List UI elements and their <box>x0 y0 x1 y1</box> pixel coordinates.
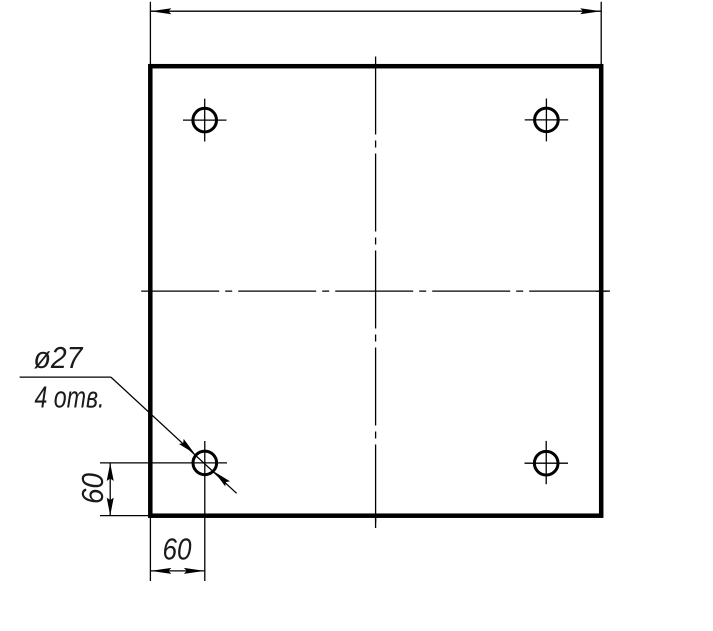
svg-text:60: 60 <box>75 473 110 504</box>
svg-text:4 отв.: 4 отв. <box>35 380 105 415</box>
svg-text:ø27: ø27 <box>34 340 85 375</box>
svg-text:60: 60 <box>163 532 192 567</box>
